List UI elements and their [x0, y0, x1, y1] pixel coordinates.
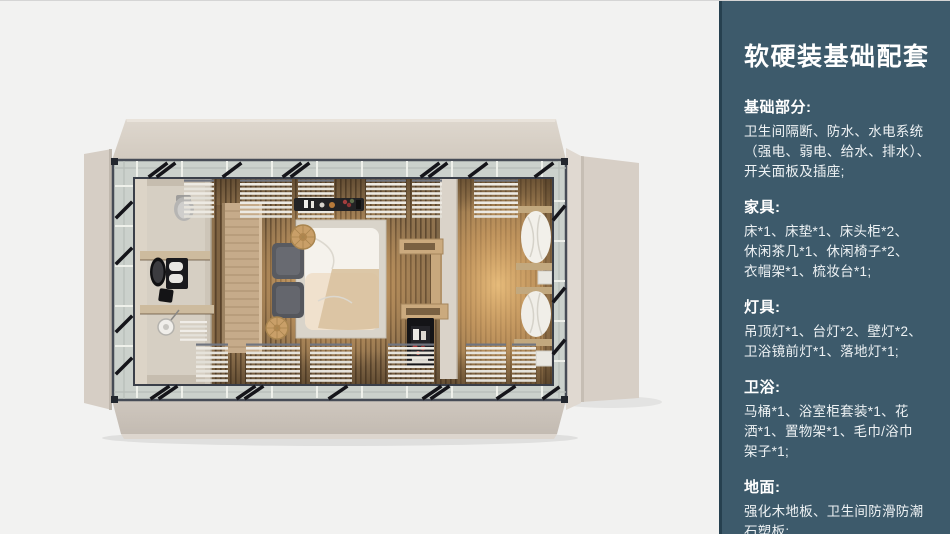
section-heading: 家具: — [744, 196, 936, 217]
spec-line: 衣帽架*1、梳妆台*1; — [744, 262, 936, 282]
spec-section-basics: 基础部分: 卫生间隔断、防水、水电系统 （强电、弱电、给水、排水）、 开关面板及… — [744, 96, 936, 182]
round-nightstand — [266, 317, 288, 339]
slide: 软硬装基础配套 基础部分: 卫生间隔断、防水、水电系统 （强电、弱电、给水、排水… — [0, 0, 950, 534]
spec-section-floor: 地面: 强化木地板、卫生间防滑防潮 石塑板; — [744, 476, 936, 534]
wall-shelf — [401, 304, 448, 319]
spec-section-bathroom: 卫浴: 马桶*1、浴室柜套装*1、花 洒*1、置物架*1、毛巾/浴巾 架子*1; — [744, 376, 936, 462]
section-heading: 地面: — [744, 476, 936, 497]
spec-line: （强电、弱电、给水、排水）、 — [744, 142, 936, 162]
chair-wood-bar — [516, 263, 553, 270]
spec-line: 架子*1; — [744, 442, 936, 462]
chair-cushion — [521, 291, 551, 337]
spec-section-lighting: 灯具: 吊顶灯*1、台灯*2、壁灯*2、 卫浴镜前灯*1、落地灯*1; — [744, 296, 936, 362]
room-top-view-render — [0, 1, 719, 534]
round-nightstand — [291, 225, 315, 249]
spec-line: 马桶*1、浴室柜套装*1、花 — [744, 402, 936, 422]
spec-line: 卫生间隔断、防水、水电系统 — [744, 122, 936, 142]
room-render-area — [0, 1, 719, 534]
side-table — [536, 351, 552, 366]
section-heading: 灯具: — [744, 296, 936, 317]
chair-cushion — [521, 211, 551, 263]
wood-partition — [214, 203, 262, 353]
spec-line: 吊顶灯*1、台灯*2、壁灯*2、 — [744, 322, 936, 342]
dressing-table-shelf — [399, 239, 443, 254]
minibar-unit — [407, 318, 434, 368]
vanity-stool — [158, 288, 174, 303]
spec-sidebar: 软硬装基础配套 基础部分: 卫生间隔断、防水、水电系统 （强电、弱电、给水、排水… — [719, 1, 950, 534]
side-table — [538, 271, 552, 284]
section-heading: 基础部分: — [744, 96, 936, 117]
decor-shelf — [294, 198, 364, 211]
spec-line: 床*1、床垫*1、床头柜*2、 — [744, 222, 936, 242]
spec-line: 洒*1、置物架*1、毛巾/浴巾 — [744, 422, 936, 442]
room-interior — [134, 178, 570, 385]
spec-line: 休闲茶几*1、休闲椅子*2、 — [744, 242, 936, 262]
spec-line: 强化木地板、卫生间防滑防潮 — [744, 502, 936, 522]
spec-line: 卫浴镜前灯*1、落地灯*1; — [744, 342, 936, 362]
sidebar-title: 软硬装基础配套 — [744, 43, 936, 72]
spec-line: 石塑板; — [744, 522, 936, 534]
spec-section-furniture: 家具: 床*1、床垫*1、床头柜*2、 休闲茶几*1、休闲椅子*2、 衣帽架*1… — [744, 196, 936, 282]
spec-line: 开关面板及插座; — [744, 162, 936, 182]
section-heading: 卫浴: — [744, 376, 936, 397]
